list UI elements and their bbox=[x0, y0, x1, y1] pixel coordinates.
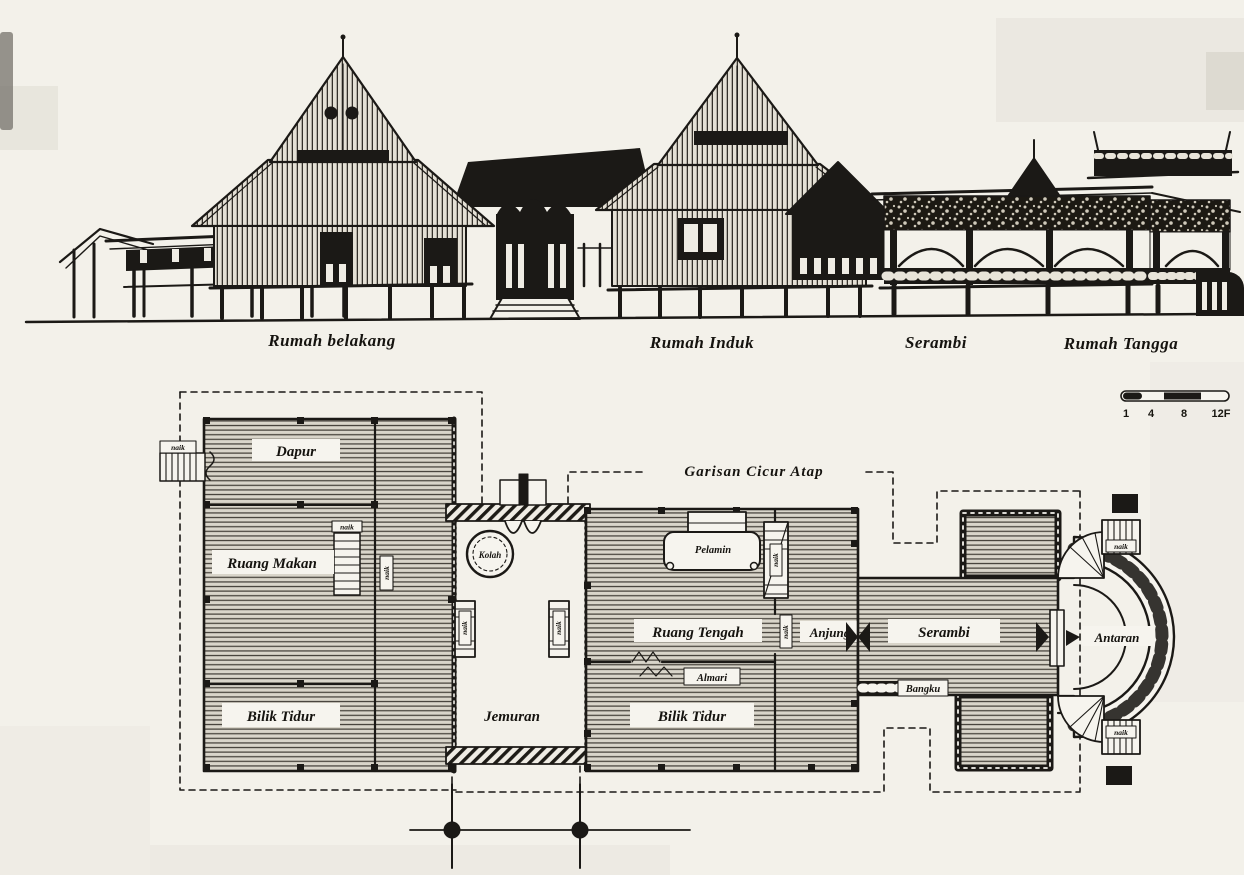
label-garisan-cicur-atap: Garisan Cicur Atap bbox=[684, 464, 823, 480]
label-ruang-tengah: Ruang Tengah bbox=[651, 625, 744, 641]
label-rumah-belakang: Rumah belakang bbox=[267, 331, 395, 350]
label-naik-dapur: naik bbox=[171, 443, 185, 452]
label-jemuran: Jemuran bbox=[483, 709, 540, 725]
label-almari: Almari bbox=[696, 673, 727, 684]
label-kolah: Kolah bbox=[478, 550, 502, 560]
scale-tick-8: 8 bbox=[1181, 408, 1187, 420]
label-serambi: Serambi bbox=[905, 333, 967, 352]
entrance-porch bbox=[490, 199, 612, 319]
stair-jemuran-right: naik bbox=[549, 601, 569, 657]
label-ruang-makan: Ruang Makan bbox=[226, 556, 317, 572]
label-naik-ruang-makan: naik bbox=[340, 523, 354, 532]
label-pelamin: Pelamin bbox=[695, 545, 731, 556]
label-naik-jemuran-right: naik bbox=[554, 621, 563, 635]
label-bangku: Bangku bbox=[905, 684, 941, 695]
rumah-belakang-elevation bbox=[192, 35, 494, 319]
label-rumah-tangga: Rumah Tangga bbox=[1063, 334, 1179, 353]
stair-left-block-strip: naik bbox=[380, 556, 393, 590]
door-right bbox=[424, 238, 457, 286]
gable-vent-left bbox=[325, 107, 338, 120]
label-naik-strip: naik bbox=[382, 566, 391, 580]
gable-vent-right bbox=[346, 107, 359, 120]
elevation-labels: Rumah belakang Rumah Induk Serambi Rumah… bbox=[267, 331, 1178, 353]
label-naik-anjung: naik bbox=[781, 625, 790, 639]
label-serambi-plan: Serambi bbox=[918, 625, 971, 641]
floor-plan: Garisan Cicur Atap naik bbox=[160, 392, 1174, 868]
label-naik-jemuran-left: naik bbox=[460, 621, 469, 635]
door-left bbox=[320, 232, 353, 286]
label-rumah-induk: Rumah Induk bbox=[649, 333, 754, 352]
mini-gable bbox=[1008, 158, 1060, 196]
carved-frieze bbox=[884, 196, 1150, 230]
label-bilik-tidur-left: Bilik Tidur bbox=[246, 709, 315, 725]
label-bilik-tidur-right: Bilik Tidur bbox=[657, 709, 726, 725]
label-naik-pelamin: naik bbox=[771, 553, 780, 567]
scanned-architectural-drawing: Rumah belakang Rumah Induk Serambi Rumah… bbox=[0, 0, 1244, 875]
stair-jemuran-left: naik bbox=[455, 601, 475, 657]
malay-house-drawing-svg: Rumah belakang Rumah Induk Serambi Rumah… bbox=[0, 0, 1244, 875]
stair-ruang-makan: naik bbox=[332, 521, 362, 595]
label-naik-antaran-bottom: naik bbox=[1114, 728, 1128, 737]
ground-line bbox=[26, 314, 1208, 322]
label-antaran: Antaran bbox=[1094, 630, 1140, 645]
label-naik-antaran-top: naik bbox=[1114, 542, 1128, 551]
scale-tick-4: 4 bbox=[1148, 408, 1155, 420]
label-dapur: Dapur bbox=[275, 444, 316, 460]
stair-pelamin: naik bbox=[764, 522, 788, 598]
scale-tick-12f: 12F bbox=[1212, 408, 1231, 420]
scale-tick-1: 1 bbox=[1123, 408, 1129, 420]
label-anjung: Anjung bbox=[809, 625, 851, 640]
